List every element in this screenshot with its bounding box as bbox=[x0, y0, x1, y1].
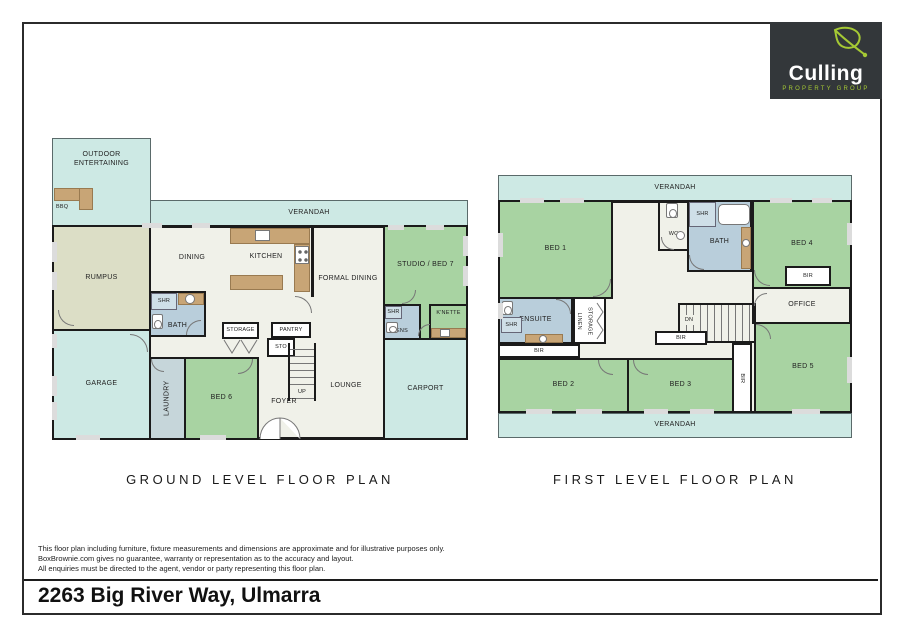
room-label-kitchen: KITCHEN bbox=[234, 253, 298, 260]
room-label: BIR bbox=[534, 348, 544, 355]
ground-floor-plan: OUTDOOR ENTERTAINING BBQ VERANDAH RUMPUS… bbox=[52, 138, 468, 440]
closet-label-linen: LINEN bbox=[574, 303, 584, 339]
window bbox=[52, 376, 57, 396]
room-label: STORAGE bbox=[226, 327, 254, 334]
window bbox=[192, 223, 210, 228]
stairs-up-label: UP bbox=[290, 389, 314, 396]
window bbox=[847, 357, 852, 383]
room-label: PANTRY bbox=[279, 327, 302, 334]
window bbox=[52, 272, 57, 290]
window bbox=[576, 409, 602, 414]
room-label: BIR bbox=[803, 273, 813, 280]
room-verandah-top: VERANDAH bbox=[498, 175, 852, 201]
sink-icon bbox=[440, 329, 450, 337]
closet-label-storage: STORAGE bbox=[584, 301, 594, 341]
room-label-lounge: LOUNGE bbox=[316, 382, 376, 389]
property-address: 2263 Big River Way, Ulmarra bbox=[38, 584, 320, 608]
room-label: RUMPUS bbox=[85, 274, 117, 283]
disclaimer: This floor plan including furniture, fix… bbox=[38, 544, 445, 573]
room-label: BED 2 bbox=[553, 381, 575, 390]
room-label: BED 4 bbox=[791, 240, 813, 249]
room-label: LINEN bbox=[576, 312, 583, 329]
room-label: BED 5 bbox=[792, 363, 814, 372]
window bbox=[526, 409, 552, 414]
closet-bir: BIR bbox=[655, 331, 707, 345]
window bbox=[52, 402, 57, 420]
room-laundry: LAUNDRY bbox=[149, 357, 186, 440]
logo-name: Culling bbox=[789, 64, 864, 84]
room-outdoor-entertaining: OUTDOOR ENTERTAINING bbox=[52, 138, 151, 226]
closet-storage: STORAGE bbox=[222, 322, 259, 339]
room-label: LAUNDRY bbox=[163, 381, 172, 416]
room-label: BED 1 bbox=[545, 245, 567, 254]
sink-icon bbox=[255, 230, 270, 241]
bbq-counter bbox=[54, 188, 80, 201]
closet-bir: BIR bbox=[732, 343, 752, 413]
room-label: SHR bbox=[696, 211, 708, 218]
room-label: BIR bbox=[739, 373, 746, 383]
room-label: K'NETTE bbox=[436, 310, 460, 317]
logo-tagline: PROPERTY GROUP bbox=[782, 86, 869, 92]
closet-pantry: PANTRY bbox=[271, 322, 311, 338]
room-label: CARPORT bbox=[407, 385, 443, 394]
leaf-icon bbox=[828, 26, 870, 58]
disclaimer-line: This floor plan including furniture, fix… bbox=[38, 544, 445, 554]
room-label-formal-dining: FORMAL DINING bbox=[309, 275, 387, 282]
room-studio-bed7: STUDIO / BED 7 bbox=[383, 225, 468, 306]
window bbox=[388, 225, 404, 230]
window bbox=[560, 198, 584, 203]
room-shower: SHR bbox=[151, 293, 177, 310]
window bbox=[770, 198, 792, 203]
sink-icon bbox=[742, 239, 750, 247]
interior-wall bbox=[311, 225, 314, 297]
window bbox=[426, 225, 444, 230]
window bbox=[76, 435, 100, 440]
room-label: VERANDAH bbox=[288, 209, 329, 218]
room-shower: SHR bbox=[501, 317, 522, 333]
wardrobe-doors-icon bbox=[595, 301, 605, 341]
window bbox=[463, 236, 468, 256]
double-entry-door bbox=[258, 416, 302, 440]
kitchen-counter bbox=[230, 228, 310, 244]
window bbox=[847, 223, 852, 245]
toilet-icon bbox=[386, 322, 398, 333]
room-label: BED 3 bbox=[670, 381, 692, 390]
basin-icon bbox=[676, 231, 685, 240]
room-label: STORAGE bbox=[586, 307, 593, 335]
closet-bir: BIR bbox=[785, 266, 831, 286]
room-label: STO bbox=[275, 344, 287, 351]
toilet-icon bbox=[152, 314, 163, 329]
room-shower: SHR bbox=[385, 306, 402, 319]
window bbox=[792, 409, 820, 414]
window bbox=[644, 409, 668, 414]
first-plan-title: FIRST LEVEL FLOOR PLAN bbox=[498, 472, 852, 487]
room-label: BATH bbox=[710, 238, 729, 247]
room-office: OFFICE bbox=[752, 287, 852, 324]
window bbox=[463, 266, 468, 286]
vanity-counter bbox=[741, 227, 751, 269]
room-label: DN bbox=[685, 317, 693, 324]
room-label: OUTDOOR ENTERTAINING bbox=[74, 151, 129, 168]
disclaimer-line: All enquiries must be directed to the ag… bbox=[38, 564, 445, 574]
room-verandah-bottom: VERANDAH bbox=[498, 413, 852, 438]
room-label: BIR bbox=[676, 335, 686, 342]
bbq-counter bbox=[79, 188, 93, 210]
room-label: OFFICE bbox=[788, 301, 815, 310]
room-label: SHR bbox=[158, 298, 170, 305]
room-label: VERANDAH bbox=[654, 421, 695, 430]
window bbox=[52, 242, 57, 262]
first-floor-plan: VERANDAH VERANDAH BED 1 WC BATH SHR BED … bbox=[498, 175, 852, 438]
toilet-icon bbox=[502, 301, 513, 315]
room-label: BED 6 bbox=[211, 394, 233, 403]
window bbox=[52, 334, 57, 348]
logo: Culling PROPERTY GROUP bbox=[770, 22, 882, 99]
window bbox=[498, 303, 503, 319]
floorplan-page: Culling PROPERTY GROUP OUTDOOR ENTERTAIN… bbox=[0, 0, 900, 636]
address-divider bbox=[24, 579, 878, 581]
room-label-bbq: BBQ bbox=[56, 204, 80, 211]
wardrobe-doors-icon bbox=[222, 339, 259, 355]
room-label: SHR bbox=[505, 322, 517, 329]
room-label-foyer: FOYER bbox=[254, 398, 314, 405]
sink-icon bbox=[185, 294, 195, 304]
room-label: SHR bbox=[387, 309, 399, 316]
room-carport: CARPORT bbox=[383, 338, 468, 440]
room-shower: SHR bbox=[689, 202, 716, 227]
stairs-down-label: DN bbox=[680, 315, 698, 325]
room-label: STUDIO / BED 7 bbox=[397, 261, 454, 270]
kitchen-island bbox=[230, 275, 283, 290]
window bbox=[690, 409, 714, 414]
room-label: BATH bbox=[168, 322, 187, 331]
ground-plan-title: GROUND LEVEL FLOOR PLAN bbox=[52, 472, 468, 487]
window bbox=[142, 223, 162, 228]
window bbox=[812, 198, 832, 203]
window bbox=[200, 435, 226, 440]
window bbox=[520, 198, 544, 203]
room-label: VERANDAH bbox=[654, 184, 695, 193]
room-label: ENSUITE bbox=[519, 316, 551, 325]
sink-icon bbox=[539, 335, 547, 343]
window bbox=[498, 233, 503, 257]
room-label-dining: DINING bbox=[160, 254, 224, 261]
toilet-icon bbox=[666, 203, 678, 218]
closet-bir: BIR bbox=[498, 344, 580, 358]
bathtub-icon bbox=[718, 204, 750, 225]
disclaimer-line: BoxBrownie.com gives no guarantee, warra… bbox=[38, 554, 445, 564]
room-label: GARAGE bbox=[86, 380, 118, 389]
